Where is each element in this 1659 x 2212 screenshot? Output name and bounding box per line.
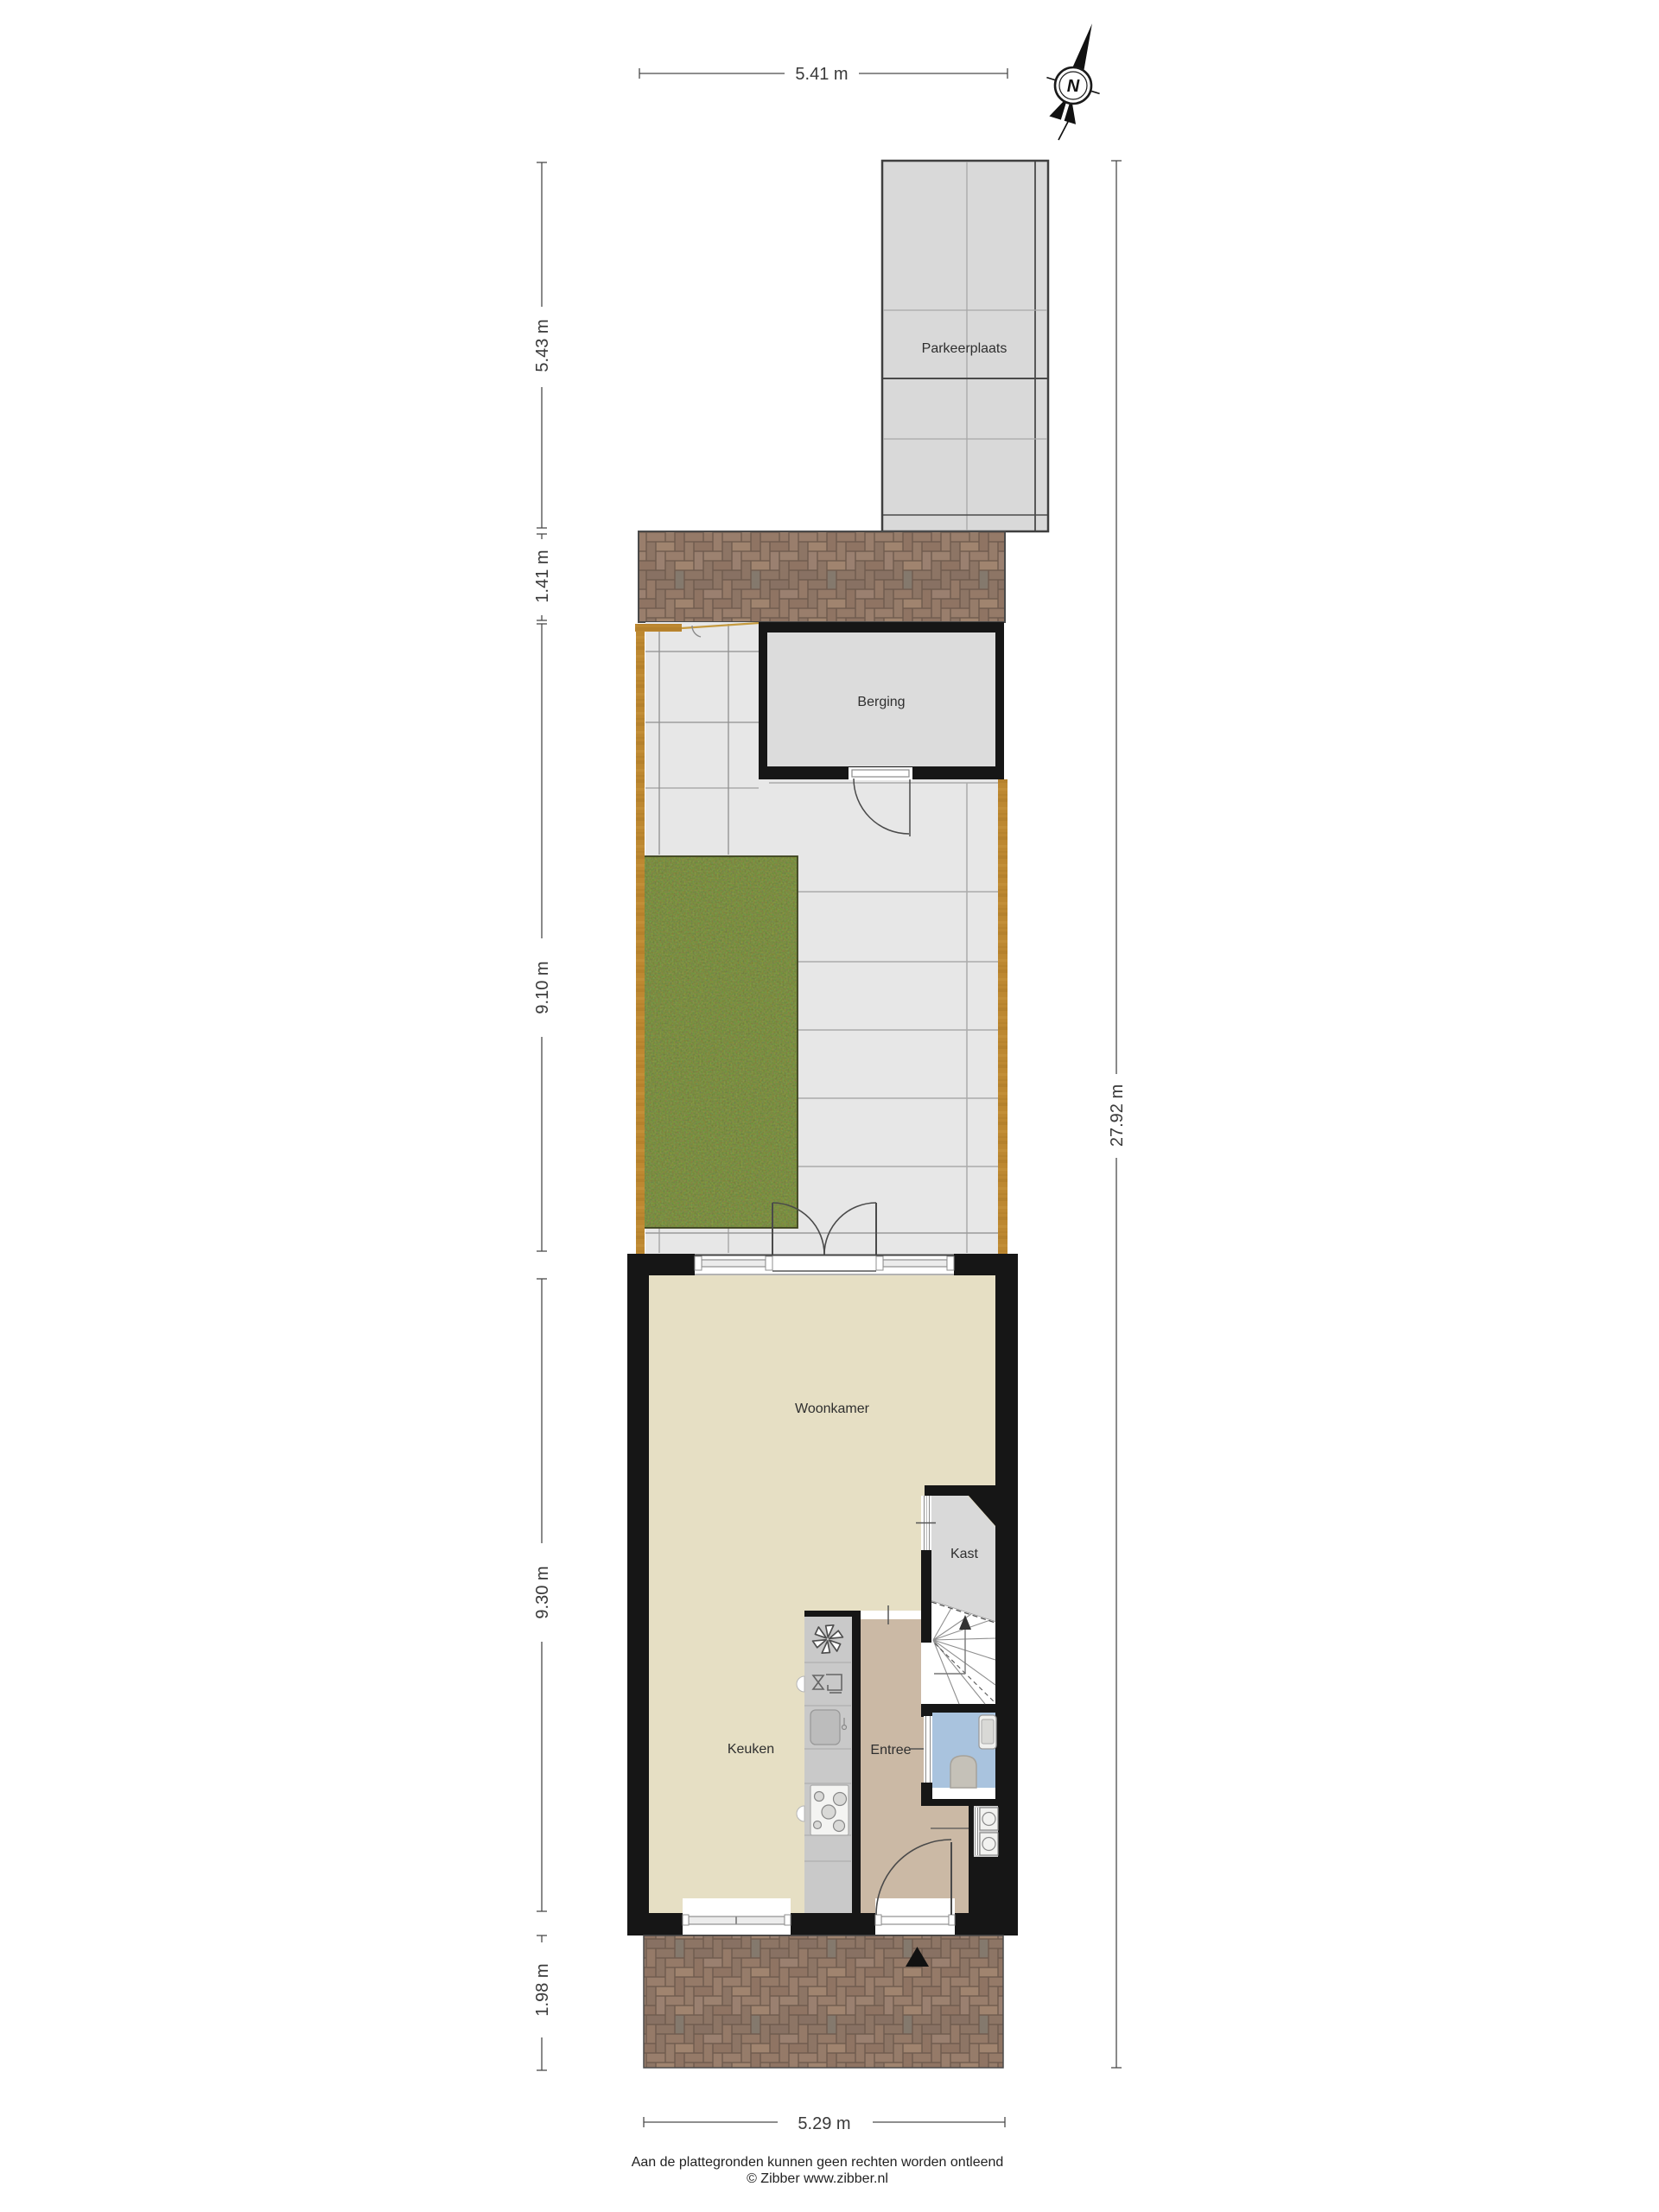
svg-text:1.98 m: 1.98 m	[533, 1963, 552, 2016]
svg-text:© Zibber www.zibber.nl: © Zibber www.zibber.nl	[747, 2171, 888, 2186]
svg-text:1.41 m: 1.41 m	[533, 550, 552, 602]
svg-text:Entree: Entree	[870, 1743, 911, 1758]
svg-text:Aan de plattegronden kunnen ge: Aan de plattegronden kunnen geen rechten…	[632, 2155, 1004, 2170]
svg-text:Keuken: Keuken	[728, 1742, 774, 1757]
svg-text:5.43 m: 5.43 m	[533, 319, 552, 372]
svg-text:9.10 m: 9.10 m	[533, 961, 552, 1014]
svg-text:Woonkamer: Woonkamer	[795, 1402, 870, 1416]
svg-text:5.41 m: 5.41 m	[795, 65, 848, 84]
svg-text:Berging: Berging	[857, 695, 905, 709]
svg-text:5.29 m: 5.29 m	[798, 2114, 850, 2133]
svg-text:27.92 m: 27.92 m	[1108, 1084, 1127, 1147]
svg-text:N: N	[1067, 77, 1080, 96]
svg-text:Parkeerplaats: Parkeerplaats	[922, 341, 1007, 356]
svg-text:9.30 m: 9.30 m	[533, 1566, 552, 1618]
svg-text:Kast: Kast	[950, 1547, 979, 1561]
